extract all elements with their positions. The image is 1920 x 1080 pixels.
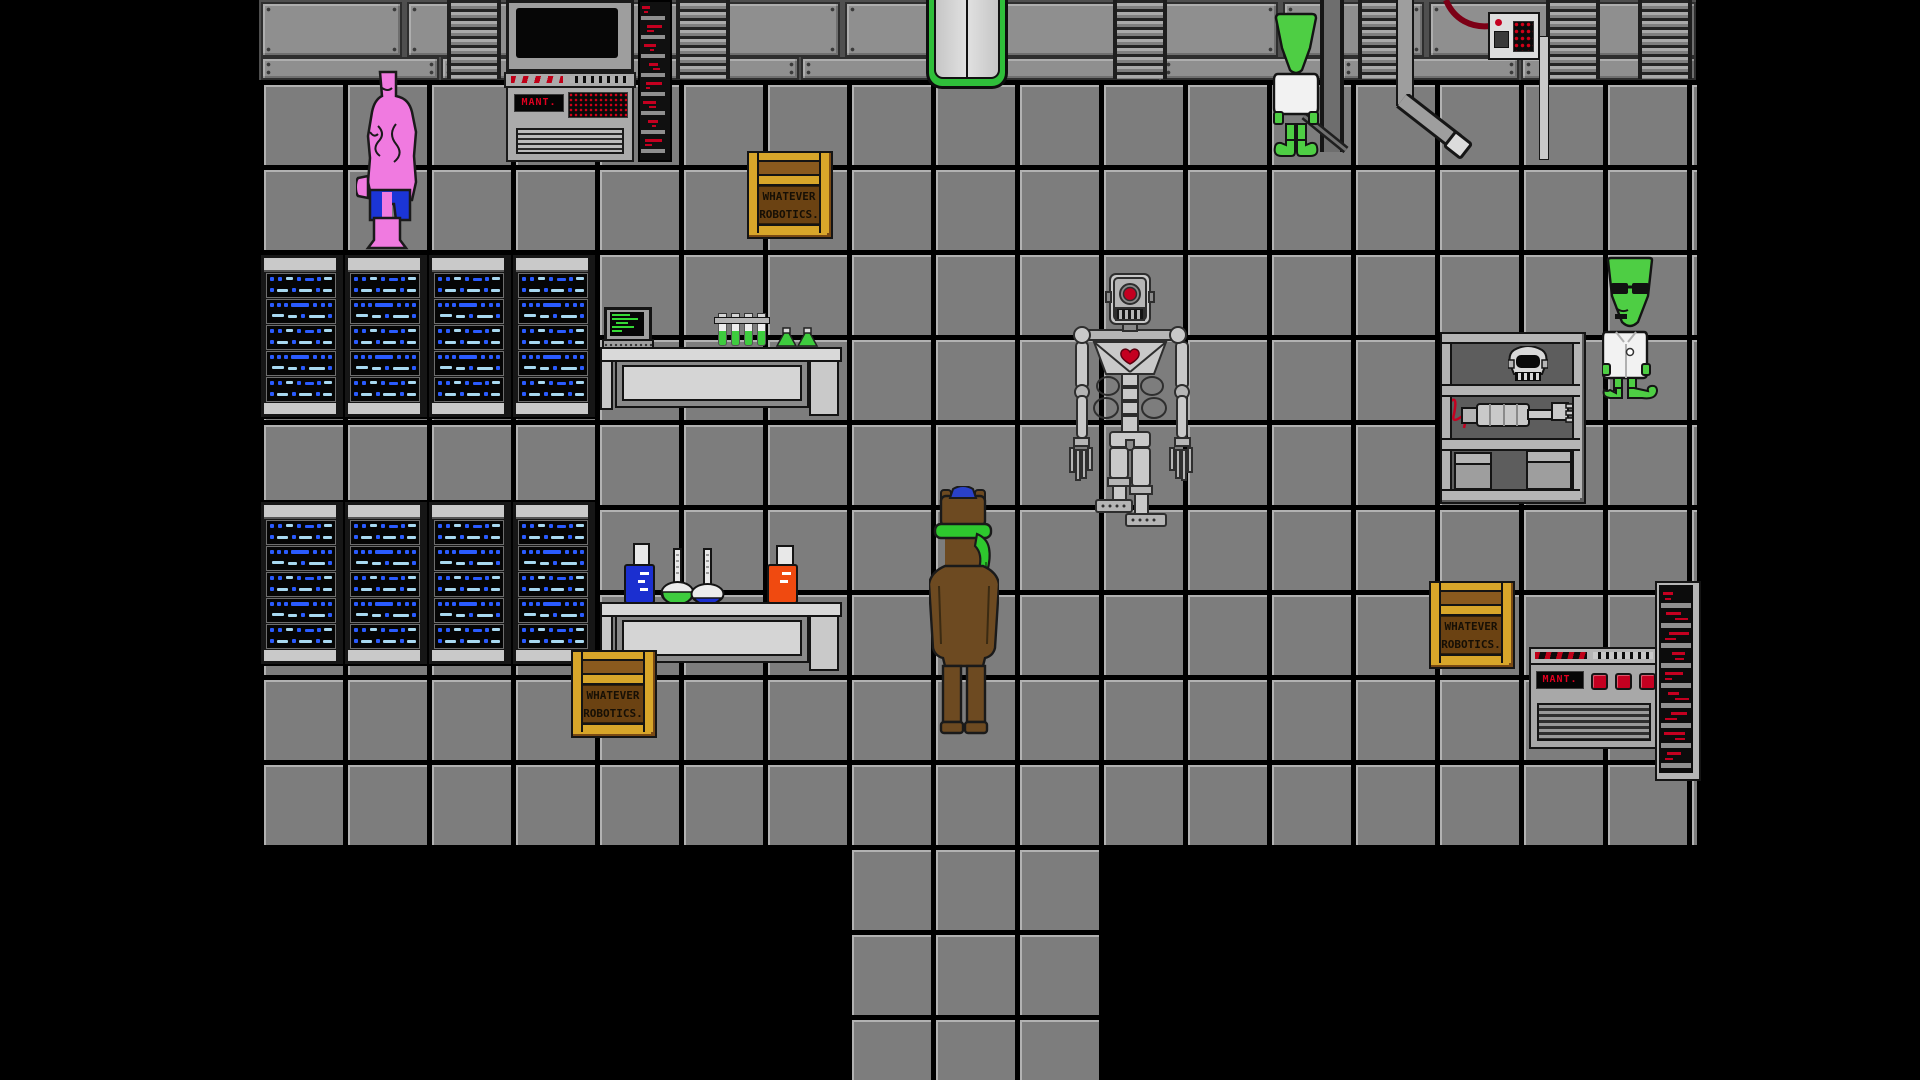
led-light-icon <box>323 640 332 643</box>
rack-led-panel <box>518 273 588 298</box>
led-light-icon <box>489 303 493 307</box>
led-light-icon <box>543 355 561 359</box>
rack-divider <box>1661 763 1691 768</box>
led-light-icon <box>652 125 656 127</box>
led-light-icon <box>313 602 317 606</box>
led-light-icon <box>544 587 548 591</box>
led-light-icon <box>356 366 368 369</box>
led-light-icon <box>370 277 377 280</box>
led-light-icon <box>354 340 358 344</box>
alien-worker[interactable] <box>1272 12 1320 160</box>
led-light-icon <box>438 639 442 643</box>
table-body <box>615 362 809 408</box>
console-body: MANT. <box>1529 663 1660 749</box>
maintenance-console[interactable]: MANT. <box>1529 647 1660 748</box>
maintenance-terminal[interactable]: MANT. <box>504 0 638 162</box>
rack-led-panel <box>266 598 336 623</box>
terminal-keyboard[interactable] <box>568 92 628 118</box>
led-light-icon <box>544 392 548 396</box>
led-light-icon <box>445 355 449 359</box>
led-light-icon <box>284 303 288 307</box>
led-light-icon <box>473 577 482 580</box>
led-light-icon <box>270 550 274 554</box>
led-light-icon <box>270 329 274 333</box>
rack-base <box>348 403 420 414</box>
rack-led-panel <box>350 273 420 298</box>
led-light-icon <box>354 587 358 591</box>
led-light-icon <box>496 314 500 318</box>
supply-crate[interactable]: WHATEVER ROBOTICS. <box>747 151 833 239</box>
led-light-icon <box>492 277 500 280</box>
bottle-body <box>624 564 655 604</box>
led-light-icon <box>557 525 566 528</box>
led-light-icon <box>354 381 358 385</box>
game-viewport[interactable]: MANT. WHATEVER ROBOTICS. <box>0 0 1920 1080</box>
led-light-icon <box>522 303 526 307</box>
led-light-icon <box>368 602 372 606</box>
led-light-icon <box>400 340 404 344</box>
led-light-icon <box>438 303 442 307</box>
led-light-icon <box>270 535 274 539</box>
led-light-icon <box>299 393 312 396</box>
led-light-icon <box>362 576 366 580</box>
led-light-icon <box>291 602 309 606</box>
wall-control-box[interactable] <box>1488 12 1540 60</box>
led-light-icon <box>354 303 358 307</box>
led-light-icon <box>491 393 500 396</box>
led-light-icon <box>393 315 409 318</box>
terminal-screen <box>516 8 618 58</box>
led-light-icon <box>644 44 656 47</box>
led-light-icon <box>361 602 365 606</box>
led-light-icon <box>361 550 365 554</box>
led-light-icon <box>445 303 449 307</box>
cabinet-vent <box>516 128 624 154</box>
switch[interactable] <box>1494 31 1509 48</box>
crate-trim <box>573 723 651 734</box>
led-light-icon <box>317 524 321 528</box>
server-rack[interactable] <box>427 500 513 666</box>
crate-band <box>749 174 827 186</box>
led-light-icon <box>381 381 385 385</box>
led-light-icon <box>297 628 301 632</box>
led-light-icon <box>485 524 489 528</box>
led-light-icon <box>1675 658 1684 660</box>
led-light-icon <box>522 355 526 359</box>
led-light-icon <box>291 550 309 554</box>
led-light-icon <box>580 366 584 370</box>
led-light-icon <box>405 602 409 606</box>
rack-led-panel <box>350 572 420 597</box>
led-light-icon <box>569 524 573 528</box>
led-light-icon <box>376 392 380 396</box>
led-light-icon <box>1665 678 1672 680</box>
supply-crate[interactable]: WHATEVER ROBOTICS. <box>1429 581 1515 669</box>
led-light-icon <box>522 288 526 292</box>
parts-shelf[interactable] <box>1440 332 1586 504</box>
led-light-icon <box>438 535 442 539</box>
led-light-icon <box>438 550 442 554</box>
led-light-icon <box>580 355 584 359</box>
led-light-icon <box>465 329 469 333</box>
rack-led-panel <box>518 520 588 545</box>
button-grid[interactable] <box>1513 21 1534 52</box>
key-strip <box>570 76 628 83</box>
orange-reagent-bottle[interactable] <box>767 545 799 604</box>
led-light-icon <box>469 561 473 565</box>
rack-led-panel <box>434 377 504 402</box>
led-light-icon <box>467 588 480 591</box>
led-light-icon <box>324 277 332 280</box>
led-light-icon <box>538 628 545 631</box>
led-light-icon <box>299 289 312 292</box>
led-light-icon <box>362 381 366 385</box>
led-light-icon <box>385 314 389 318</box>
blue-reagent-bottle[interactable] <box>624 543 656 604</box>
led-light-icon <box>446 628 450 632</box>
rack-led-panel <box>434 624 504 649</box>
led-light-icon <box>575 588 584 591</box>
led-light-icon <box>375 303 393 307</box>
led-light-icon <box>522 639 526 643</box>
led-light-icon <box>549 576 553 580</box>
led-light-icon <box>393 614 409 617</box>
led-light-icon <box>412 355 416 359</box>
wall-vent-icon <box>1113 0 1167 79</box>
led-light-icon <box>1664 732 1685 735</box>
rack-divider <box>1661 643 1691 648</box>
console-button[interactable] <box>1615 673 1632 690</box>
led-light-icon <box>522 340 526 344</box>
led-light-icon <box>316 288 320 292</box>
table-leg <box>809 362 839 416</box>
led-light-icon <box>328 561 332 565</box>
server-rack[interactable] <box>259 500 345 666</box>
horse-player[interactable] <box>929 486 999 736</box>
led-light-icon <box>522 576 526 580</box>
table-top <box>600 602 842 617</box>
led-light-icon <box>407 289 416 292</box>
erlenmeyer-flask-icon[interactable] <box>796 327 819 348</box>
led-light-icon <box>575 393 584 396</box>
led-light-icon <box>540 315 549 318</box>
server-rack[interactable] <box>343 253 429 419</box>
led-light-icon <box>438 587 442 591</box>
led-light-icon <box>573 602 577 606</box>
led-light-icon <box>492 524 500 527</box>
crate-rail <box>1431 583 1441 663</box>
led-light-icon <box>530 329 534 333</box>
led-light-icon <box>561 315 577 318</box>
led-light-icon <box>529 602 533 606</box>
led-light-icon <box>530 381 534 385</box>
led-light-icon <box>286 277 293 280</box>
led-light-icon <box>305 330 314 333</box>
rack-led-panel <box>350 520 420 545</box>
led-light-icon <box>286 628 293 631</box>
led-light-icon <box>1668 692 1679 695</box>
red-led-rack[interactable] <box>1655 581 1701 781</box>
led-light-icon <box>305 629 314 632</box>
maint-label: MANT. <box>514 94 564 112</box>
rack-led-panel <box>434 572 504 597</box>
led-light-icon <box>496 561 500 565</box>
test-tube-rack[interactable] <box>714 313 770 347</box>
led-light-icon <box>529 640 540 643</box>
led-light-icon <box>489 355 493 359</box>
led-light-icon <box>324 576 332 579</box>
led-light-icon <box>484 639 488 643</box>
console-button[interactable] <box>1591 673 1608 690</box>
rack-divider <box>1661 623 1691 628</box>
led-light-icon <box>284 355 288 359</box>
wall-panel <box>261 2 402 57</box>
led-light-icon <box>372 562 381 565</box>
led-light-icon <box>370 329 377 332</box>
parts-box <box>1454 452 1492 490</box>
led-light-icon <box>321 550 325 554</box>
led-light-icon <box>397 303 401 307</box>
led-light-icon <box>270 628 274 632</box>
crate-label-line1: WHATEVER <box>754 188 824 205</box>
lab-table[interactable] <box>600 347 846 420</box>
crate-label-area: WHATEVER ROBOTICS. <box>1435 616 1507 654</box>
alien-scientist[interactable] <box>1602 256 1658 408</box>
led-light-icon <box>551 536 564 539</box>
led-light-icon <box>270 602 274 606</box>
led-light-icon <box>551 341 564 344</box>
led-light-icon <box>383 536 396 539</box>
led-light-icon <box>646 87 650 89</box>
led-light-icon <box>397 355 401 359</box>
parts-box <box>1526 450 1572 490</box>
crate-rail <box>819 153 829 233</box>
led-light-icon <box>361 536 372 539</box>
led-light-icon <box>328 550 332 554</box>
rack-divider <box>641 16 665 20</box>
led-light-icon <box>460 535 464 539</box>
rack-cap <box>516 505 588 519</box>
led-light-icon <box>580 602 584 606</box>
led-light-icon <box>385 366 389 370</box>
led-light-icon <box>354 524 358 528</box>
server-rack[interactable] <box>343 500 429 666</box>
led-light-icon <box>576 628 584 631</box>
led-light-icon <box>305 382 314 385</box>
rack-divider <box>1661 603 1691 608</box>
led-light-icon <box>524 613 536 616</box>
rack-led-panel <box>518 624 588 649</box>
shelf-board <box>1442 384 1580 397</box>
led-light-icon <box>1675 698 1689 700</box>
led-light-icon <box>540 562 549 565</box>
led-light-icon <box>323 393 332 396</box>
led-light-icon <box>460 587 464 591</box>
led-light-icon <box>309 614 325 617</box>
crate-rail <box>573 652 583 732</box>
led-light-icon <box>1675 738 1685 740</box>
supply-crate[interactable]: WHATEVER ROBOTICS. <box>571 650 657 738</box>
led-light-icon <box>324 381 332 384</box>
rack-cap <box>432 505 504 519</box>
led-light-icon <box>301 613 305 617</box>
led-light-icon <box>551 640 564 643</box>
rack-divider <box>1661 683 1691 688</box>
lab-computer[interactable] <box>602 307 654 351</box>
led-light-icon <box>297 576 301 580</box>
crate-label-line2: ROBOTICS. <box>1436 636 1506 653</box>
led-light-icon <box>354 602 358 606</box>
led-light-icon <box>389 278 398 281</box>
led-light-icon <box>381 576 385 580</box>
led-light-icon <box>356 613 368 616</box>
led-light-icon <box>292 587 296 591</box>
led-light-icon <box>354 277 358 281</box>
erlenmeyer-flask-icon[interactable] <box>775 327 798 348</box>
led-light-icon <box>270 340 274 344</box>
led-light-icon <box>362 524 366 528</box>
led-light-icon <box>400 639 404 643</box>
led-light-icon <box>297 277 301 281</box>
led-light-icon <box>496 613 500 617</box>
led-light-icon <box>561 367 577 370</box>
led-light-icon <box>440 613 452 616</box>
led-light-icon <box>401 524 405 528</box>
led-light-icon <box>278 277 282 281</box>
led-light-icon <box>277 588 288 591</box>
crate-plank <box>1431 592 1509 604</box>
led-light-icon <box>401 277 405 281</box>
led-light-icon <box>473 330 482 333</box>
led-light-icon <box>278 329 282 333</box>
led-light-icon <box>452 550 456 554</box>
server-rack[interactable] <box>511 253 597 419</box>
led-light-icon <box>569 329 573 333</box>
led-light-icon <box>438 277 442 281</box>
led-light-icon <box>460 392 464 396</box>
led-light-icon <box>385 561 389 565</box>
led-light-icon <box>544 288 548 292</box>
led-light-icon <box>375 602 393 606</box>
led-light-icon <box>321 355 325 359</box>
rack-led-panel <box>518 377 588 402</box>
led-light-icon <box>328 602 332 606</box>
led-light-icon <box>529 355 533 359</box>
console-button[interactable] <box>1639 673 1656 690</box>
led-light-icon <box>452 355 456 359</box>
rack-divider <box>641 130 665 134</box>
led-light-icon <box>397 602 401 606</box>
led-light-icon <box>376 340 380 344</box>
shelf-board <box>1442 489 1580 500</box>
led-light-icon <box>496 550 500 554</box>
led-light-icon <box>477 367 493 370</box>
skeletal-robot[interactable] <box>1066 272 1198 528</box>
led-light-icon <box>328 366 332 370</box>
led-light-icon <box>536 602 540 606</box>
led-light-icon <box>522 550 526 554</box>
rack-led-panel <box>434 351 504 376</box>
power-cable-icon <box>1424 0 1496 42</box>
led-light-icon <box>354 628 358 632</box>
led-light-icon <box>522 628 526 632</box>
server-rack[interactable] <box>427 253 513 419</box>
led-light-icon <box>317 628 321 632</box>
led-light-icon <box>642 6 650 9</box>
terminal-monitor <box>506 0 634 72</box>
led-light-icon <box>575 536 584 539</box>
wall-vent-icon <box>676 0 730 79</box>
led-light-icon <box>452 303 456 307</box>
led-light-icon <box>553 561 557 565</box>
exit-door[interactable] <box>926 0 1008 89</box>
led-light-icon <box>561 562 577 565</box>
led-light-icon <box>288 562 297 565</box>
led-light-icon <box>408 381 416 384</box>
led-light-icon <box>313 355 317 359</box>
led-light-icon <box>452 602 456 606</box>
led-light-icon <box>292 340 296 344</box>
led-light-icon <box>576 329 584 332</box>
led-light-icon <box>481 602 485 606</box>
led-light-icon <box>536 303 540 307</box>
led-light-icon <box>576 524 584 527</box>
led-light-icon <box>473 629 482 632</box>
round-flask-blue-icon[interactable] <box>690 548 726 606</box>
led-light-icon <box>643 101 656 104</box>
led-light-icon <box>372 315 381 318</box>
led-light-icon <box>385 613 389 617</box>
led-light-icon <box>529 550 533 554</box>
led-light-icon <box>485 576 489 580</box>
led-light-icon <box>412 366 416 370</box>
led-light-icon <box>551 393 564 396</box>
server-rack[interactable] <box>259 253 345 419</box>
led-light-icon <box>485 329 489 333</box>
server-rack[interactable] <box>511 500 597 666</box>
led-light-icon <box>408 329 416 332</box>
led-light-icon <box>543 602 561 606</box>
led-light-icon <box>538 524 545 527</box>
rack-led-panel <box>266 572 336 597</box>
rack-led-panel <box>434 520 504 545</box>
led-light-icon <box>370 576 377 579</box>
led-light-icon <box>284 550 288 554</box>
led-light-icon <box>438 628 442 632</box>
crate-plank <box>749 162 827 174</box>
rack-divider <box>1661 723 1691 728</box>
led-light-icon <box>549 524 553 528</box>
led-light-icon <box>454 576 461 579</box>
led-light-icon <box>292 639 296 643</box>
led-light-icon <box>565 602 569 606</box>
led-light-icon <box>317 329 321 333</box>
led-light-icon <box>407 341 416 344</box>
led-light-icon <box>370 381 377 384</box>
led-light-icon <box>408 524 416 527</box>
led-light-icon <box>649 63 658 66</box>
led-light-icon <box>580 613 584 617</box>
led-light-icon <box>536 550 540 554</box>
led-light-icon <box>370 524 377 527</box>
led-light-icon <box>354 355 358 359</box>
led-light-icon <box>569 381 573 385</box>
led-light-icon <box>446 524 450 528</box>
led-light-icon <box>484 535 488 539</box>
rack-led-panel <box>518 572 588 597</box>
muscle-creature[interactable] <box>356 70 418 252</box>
led-light-icon <box>481 355 485 359</box>
